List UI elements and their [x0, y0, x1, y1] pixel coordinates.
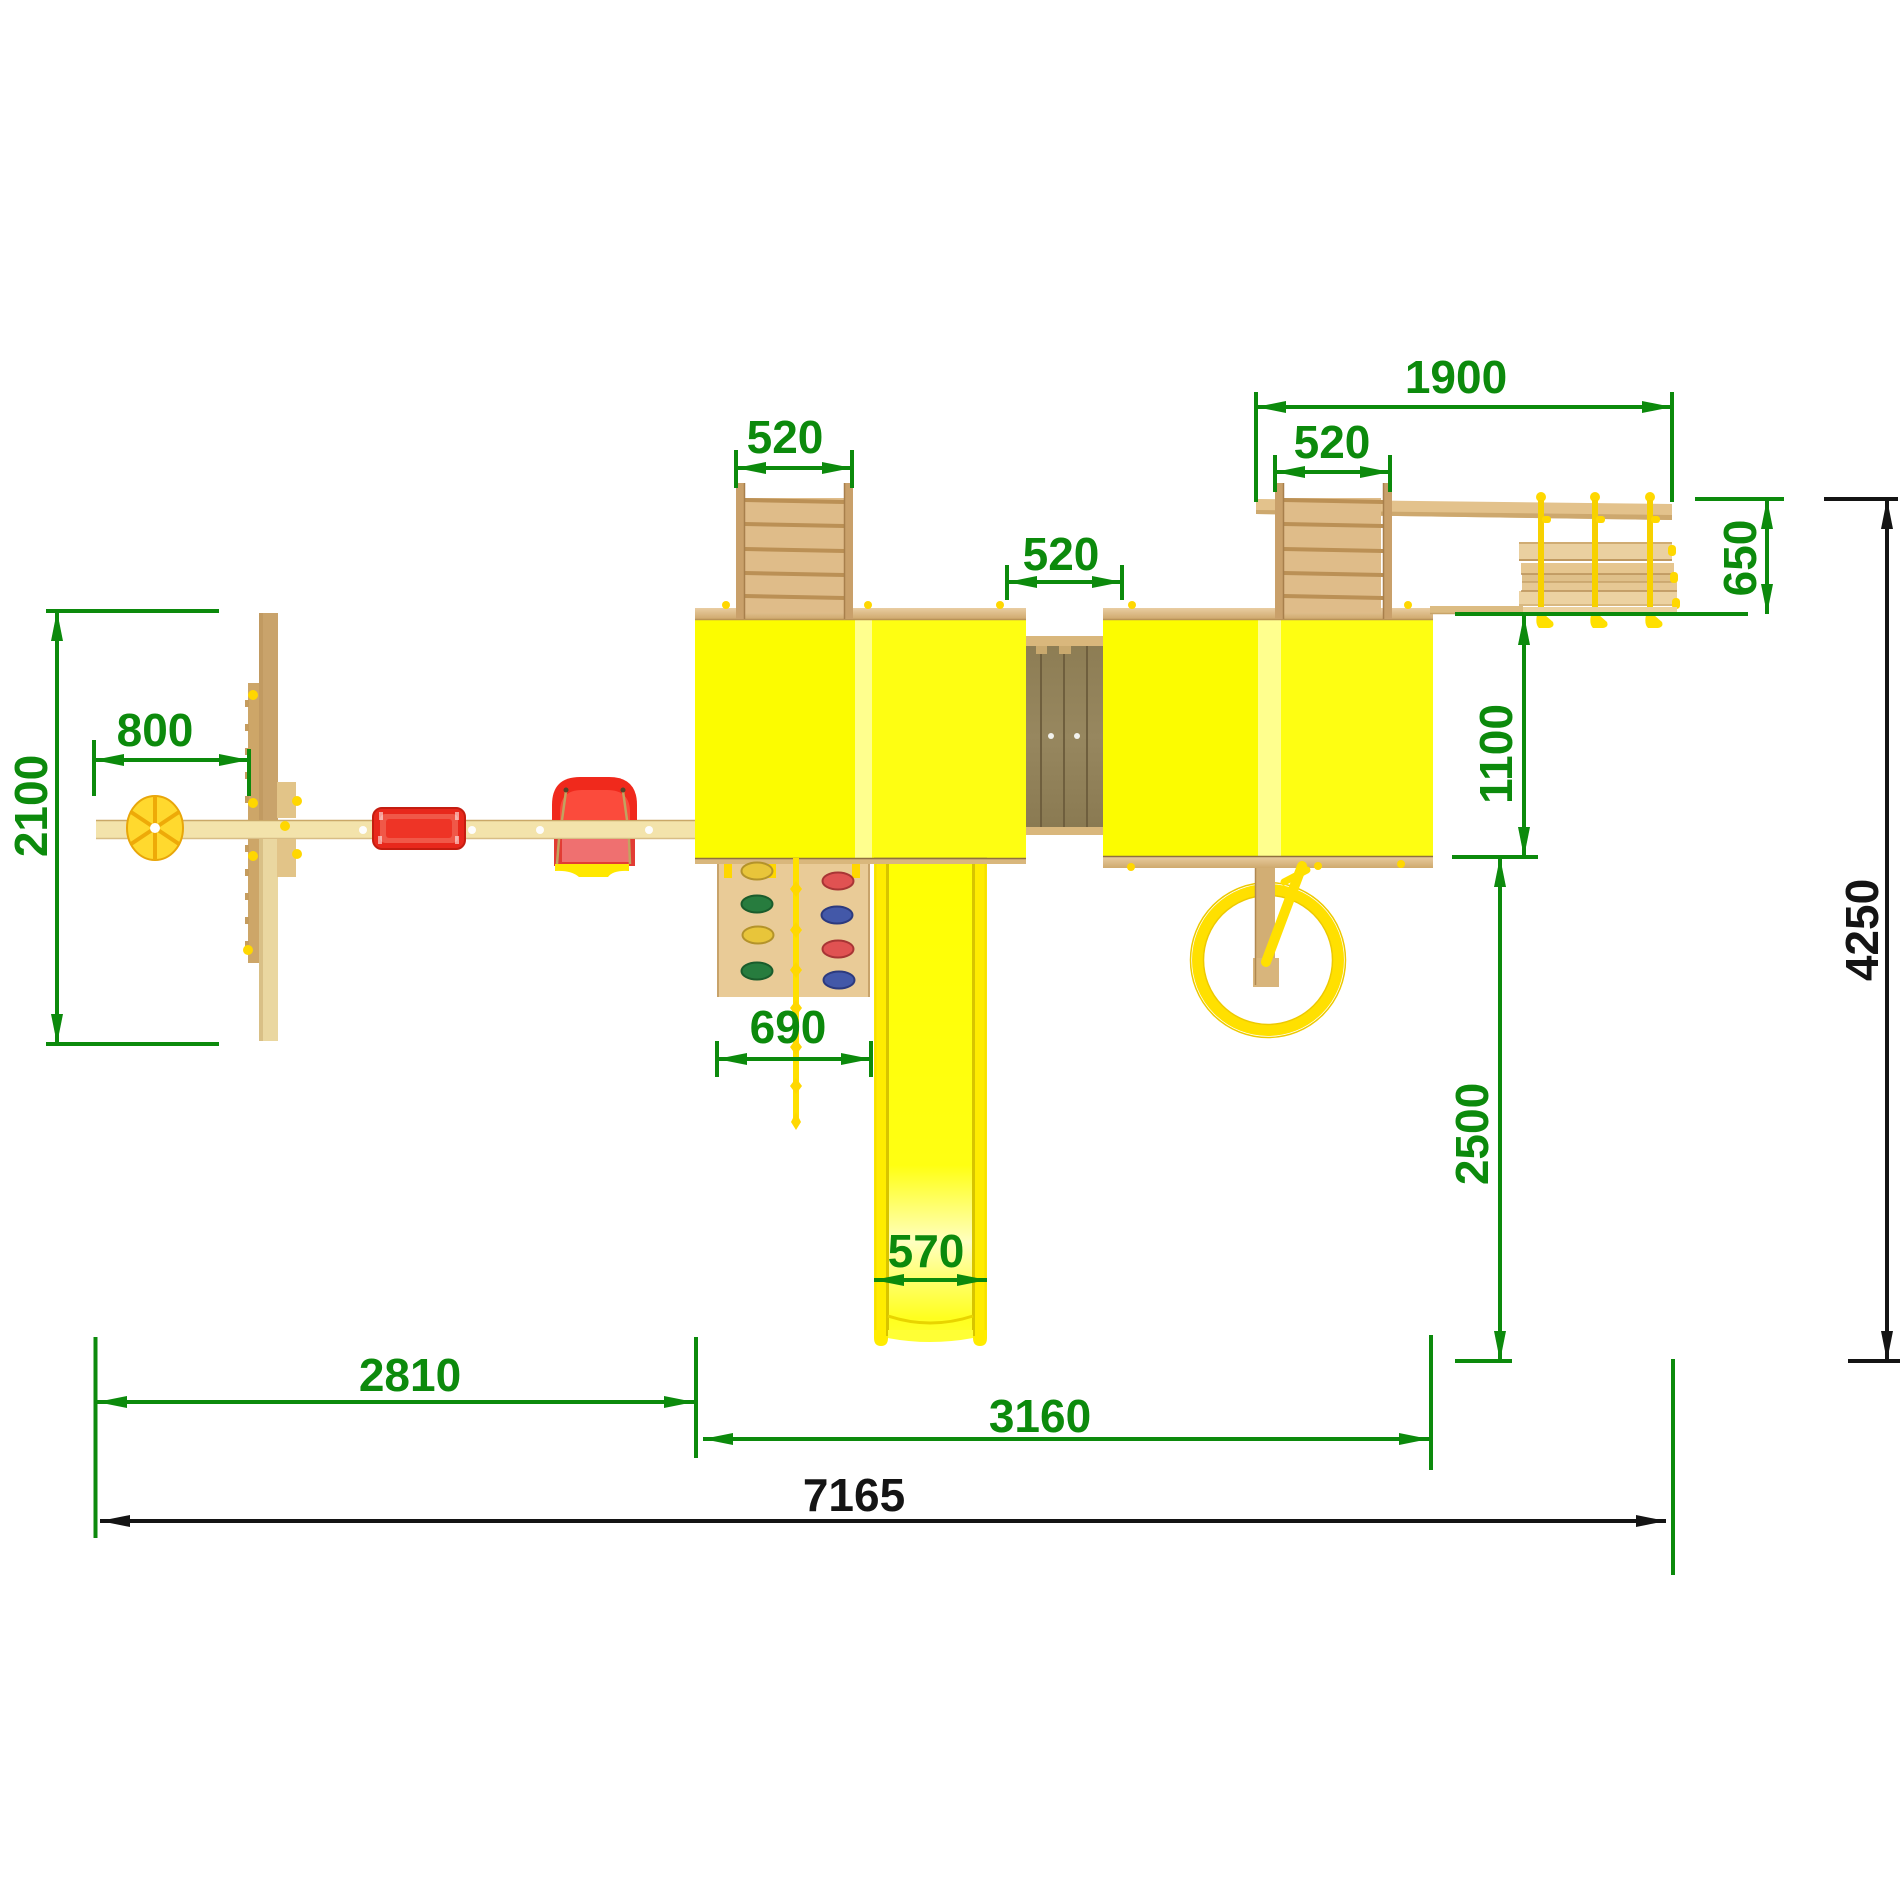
- svg-text:1100: 1100: [1470, 704, 1522, 804]
- svg-text:4250: 4250: [1836, 879, 1888, 981]
- svg-text:520: 520: [1023, 528, 1100, 580]
- svg-text:2810: 2810: [359, 1349, 461, 1401]
- svg-text:520: 520: [1294, 416, 1371, 468]
- svg-text:7165: 7165: [803, 1469, 905, 1521]
- svg-text:650: 650: [1714, 520, 1766, 597]
- svg-text:520: 520: [747, 411, 824, 463]
- svg-text:800: 800: [117, 704, 194, 756]
- svg-text:570: 570: [888, 1225, 965, 1277]
- svg-text:2500: 2500: [1446, 1083, 1498, 1185]
- svg-text:1900: 1900: [1405, 351, 1507, 403]
- svg-text:2100: 2100: [5, 755, 57, 857]
- svg-text:3160: 3160: [989, 1390, 1091, 1442]
- svg-text:690: 690: [750, 1001, 827, 1053]
